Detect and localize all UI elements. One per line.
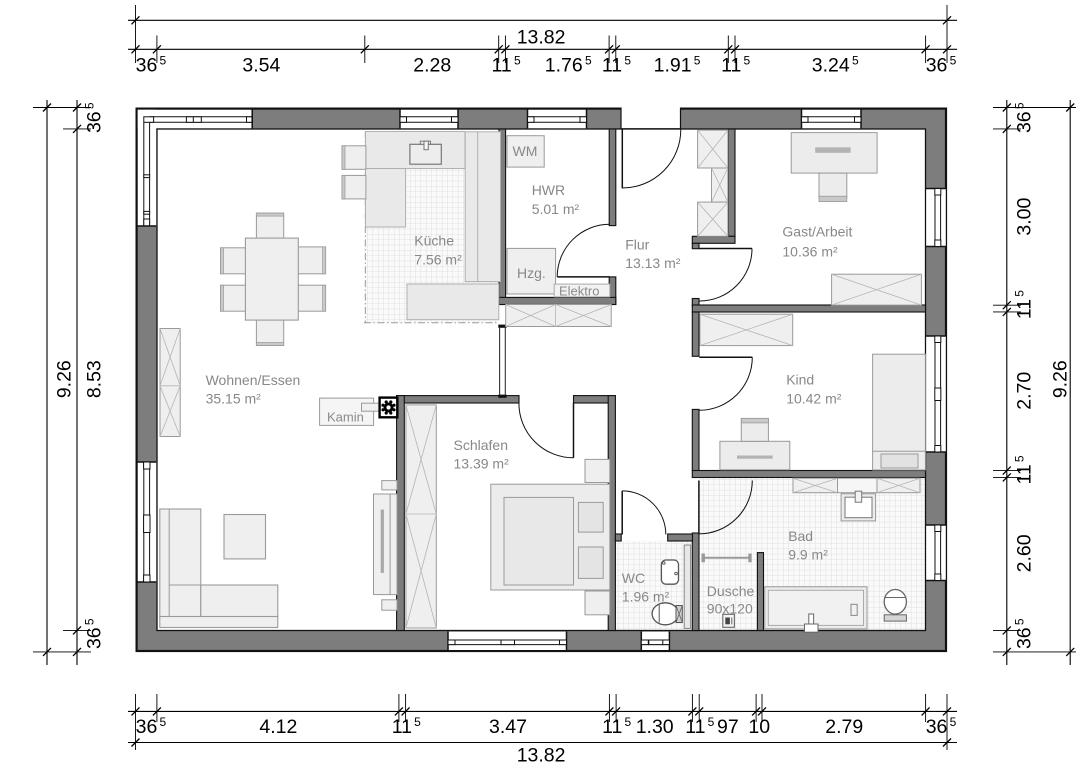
svg-text:13.82: 13.82 bbox=[517, 745, 566, 767]
svg-text:13.39 m²: 13.39 m² bbox=[454, 456, 510, 472]
svg-text:Flur: Flur bbox=[625, 236, 649, 252]
svg-text:1.96 m²: 1.96 m² bbox=[622, 588, 670, 604]
svg-text:3.54: 3.54 bbox=[242, 55, 280, 77]
svg-text:90x120: 90x120 bbox=[707, 601, 753, 617]
svg-text:Kamin: Kamin bbox=[327, 409, 364, 424]
svg-text:WM: WM bbox=[513, 143, 538, 159]
svg-text:2.70: 2.70 bbox=[1014, 372, 1036, 410]
svg-text:2.28: 2.28 bbox=[413, 55, 451, 77]
svg-text:Bad: Bad bbox=[788, 528, 813, 544]
svg-text:13.13 m²: 13.13 m² bbox=[625, 255, 681, 271]
svg-text:Schlafen: Schlafen bbox=[454, 437, 508, 453]
svg-text:1.30: 1.30 bbox=[636, 716, 674, 738]
svg-text:10.42 m²: 10.42 m² bbox=[786, 391, 842, 407]
svg-text:10: 10 bbox=[748, 716, 770, 738]
svg-text:Dusche: Dusche bbox=[707, 583, 755, 599]
svg-text:2.60: 2.60 bbox=[1014, 534, 1036, 572]
svg-text:9.9 m²: 9.9 m² bbox=[788, 546, 828, 562]
svg-text:Elektro: Elektro bbox=[559, 284, 599, 299]
svg-text:HWR: HWR bbox=[532, 182, 565, 198]
svg-text:13.82: 13.82 bbox=[517, 27, 566, 49]
svg-text:2.79: 2.79 bbox=[825, 716, 863, 738]
svg-text:Wohnen/Essen: Wohnen/Essen bbox=[206, 372, 301, 388]
svg-text:Hzg.: Hzg. bbox=[517, 265, 546, 281]
svg-text:8.53: 8.53 bbox=[84, 360, 106, 398]
svg-text:4.12: 4.12 bbox=[259, 716, 297, 738]
svg-text:3.00: 3.00 bbox=[1014, 197, 1036, 235]
svg-text:7.56 m²: 7.56 m² bbox=[414, 251, 462, 267]
svg-text:9.26: 9.26 bbox=[54, 360, 76, 398]
svg-text:5.01 m²: 5.01 m² bbox=[532, 201, 580, 217]
svg-text:97: 97 bbox=[717, 716, 739, 738]
svg-text:WC: WC bbox=[622, 570, 645, 586]
svg-text:35.15 m²: 35.15 m² bbox=[206, 391, 262, 407]
svg-text:3.47: 3.47 bbox=[489, 716, 527, 738]
svg-text:10.36 m²: 10.36 m² bbox=[782, 243, 838, 259]
svg-text:Küche: Küche bbox=[414, 232, 454, 248]
svg-text:Gast/Arbeit: Gast/Arbeit bbox=[782, 223, 852, 239]
svg-text:9.26: 9.26 bbox=[1050, 360, 1072, 398]
svg-text:Kind: Kind bbox=[786, 371, 814, 387]
